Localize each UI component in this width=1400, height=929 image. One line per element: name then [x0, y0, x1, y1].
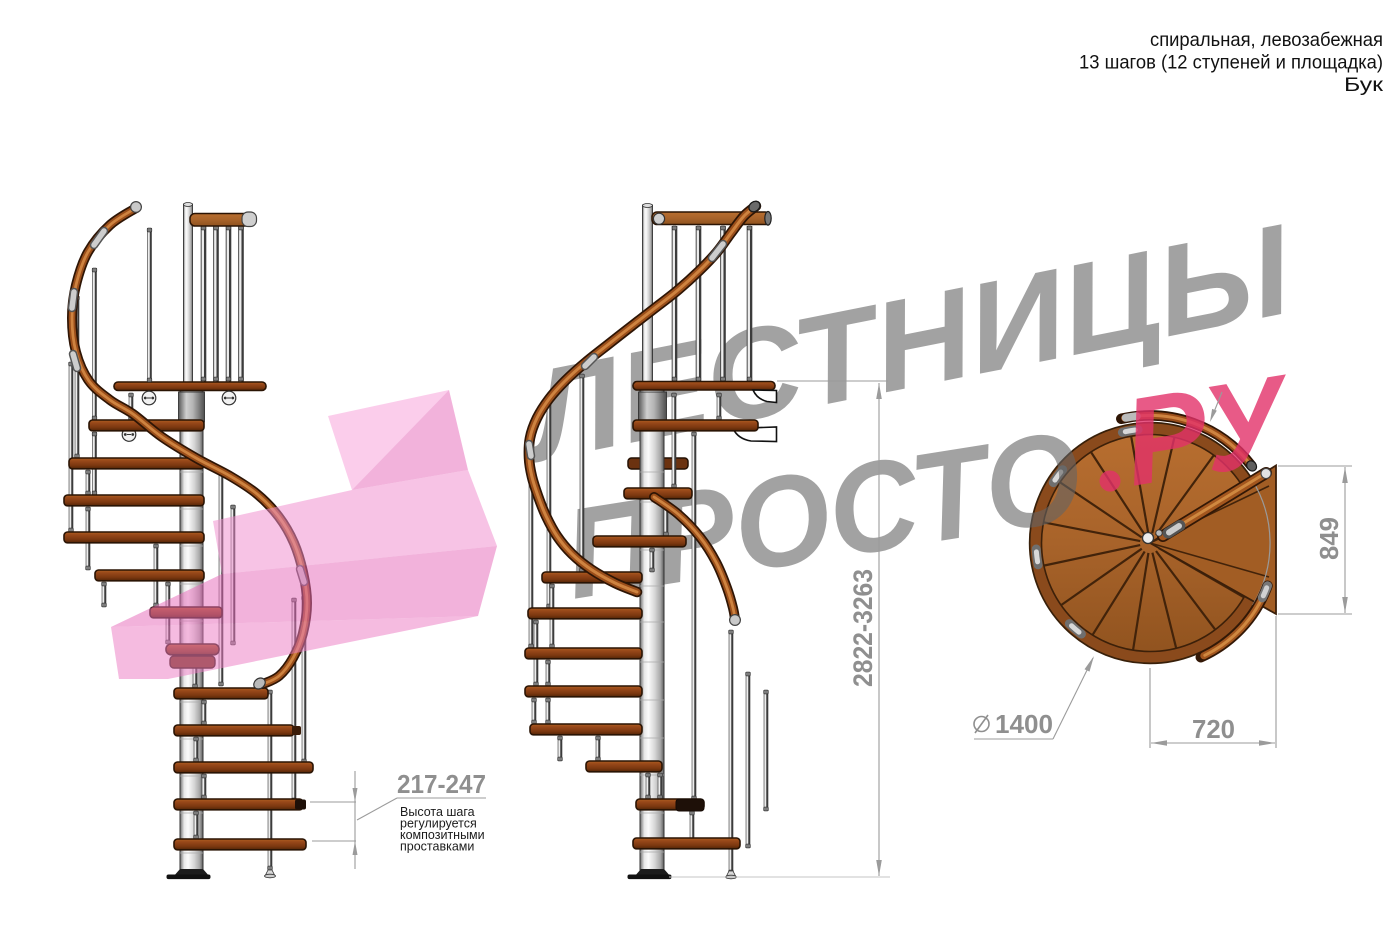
svg-text:проставками: проставками	[400, 840, 474, 854]
svg-text:РУ: РУ	[1114, 349, 1304, 513]
svg-text:1400: 1400	[995, 709, 1053, 739]
svg-text:2822-3263: 2822-3263	[848, 569, 878, 687]
svg-text:13 шагов (12 ступеней и площад: 13 шагов (12 ступеней и площадка)	[1079, 52, 1383, 74]
svg-text:спиральная, левозабежная: спиральная, левозабежная	[1150, 29, 1383, 51]
svg-text:720: 720	[1192, 714, 1235, 744]
svg-text:217-247: 217-247	[397, 769, 486, 799]
svg-text:Бук: Бук	[1344, 74, 1384, 96]
svg-text:849: 849	[1314, 517, 1344, 560]
